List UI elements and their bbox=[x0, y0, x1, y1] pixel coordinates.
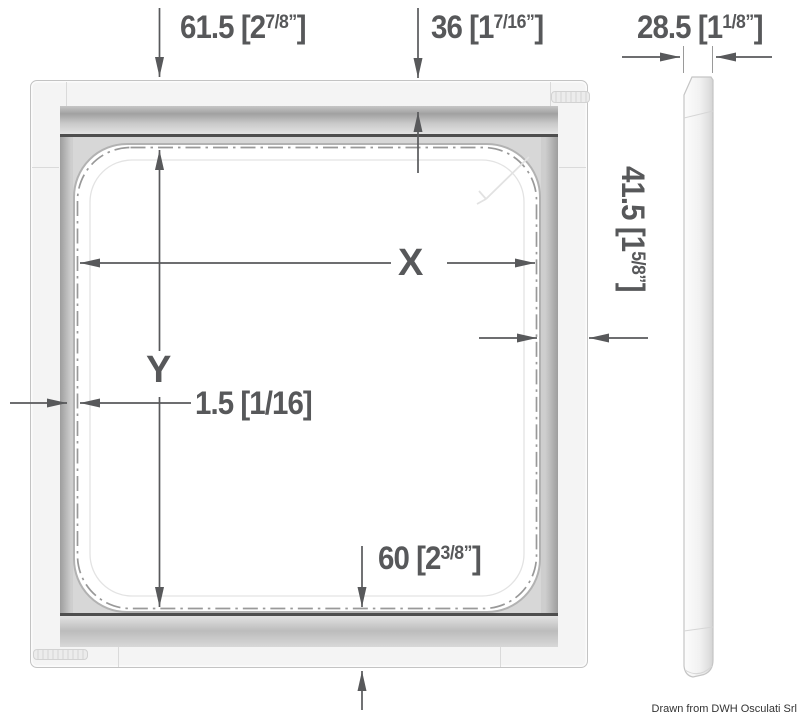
dim-suffix: ] bbox=[615, 283, 651, 292]
dim-fraction: 5/8” bbox=[627, 251, 648, 283]
dim-value: 28.5 [1 bbox=[637, 9, 722, 45]
side-profile-view bbox=[684, 77, 713, 677]
frame-seam bbox=[500, 646, 501, 667]
dim-fraction: 7/8” bbox=[265, 12, 297, 33]
dim-label-bottom: 60 [23/8”] bbox=[378, 542, 481, 574]
dim-label-top-left: 61.5 [27/8”] bbox=[180, 11, 306, 43]
dim-suffix: ] bbox=[754, 9, 763, 45]
top-cassette-bar bbox=[60, 106, 558, 137]
dim-suffix: ] bbox=[534, 9, 543, 45]
technical-drawing-canvas: 61.5 [27/8”] 36 [17/16”] 28.5 [11/8”] 41… bbox=[0, 0, 800, 720]
dim-label-edge-gap: 1.5 [1/16] bbox=[195, 387, 312, 419]
brand-badge-bottom-left bbox=[33, 649, 88, 660]
dim-label-top-right: 28.5 [11/8”] bbox=[637, 11, 763, 43]
dim-value: 1.5 [1/16] bbox=[195, 385, 312, 421]
dim-label-y: Y bbox=[146, 351, 171, 389]
dim-value: 41.5 [1 bbox=[615, 166, 651, 251]
dim-suffix: ] bbox=[472, 540, 481, 576]
dim-fraction: 3/8” bbox=[441, 543, 473, 564]
extension-lines bbox=[684, 46, 713, 73]
dim-label-top-middle: 36 [17/16”] bbox=[431, 11, 543, 43]
dim-fraction: 7/16” bbox=[494, 12, 535, 33]
side-profile-body bbox=[684, 77, 713, 677]
brand-badge-top-right bbox=[551, 91, 590, 103]
left-rail bbox=[60, 137, 73, 616]
dim-suffix: ] bbox=[297, 9, 306, 45]
dim-label-x: X bbox=[398, 244, 423, 282]
dim-fraction: 1/8” bbox=[722, 12, 754, 33]
blind-rail-frame bbox=[60, 106, 558, 647]
frame-seam bbox=[118, 646, 119, 667]
side-profile-seam bbox=[684, 111, 713, 118]
side-profile-seam bbox=[684, 627, 713, 631]
dim-label-right-side: 41.5 [15/8”] bbox=[617, 166, 649, 292]
bottom-rail-bar bbox=[60, 613, 558, 647]
drawing-credit: Drawn from DWH Osculati Srl bbox=[630, 703, 797, 716]
dim-value: 36 [1 bbox=[431, 9, 494, 45]
frame-seam bbox=[66, 82, 67, 107]
frame-seam bbox=[559, 167, 586, 168]
right-rail bbox=[541, 137, 558, 616]
dim-value: 60 [2 bbox=[378, 540, 441, 576]
side-profile-bottom-cap bbox=[685, 666, 712, 674]
dim-value: 61.5 [2 bbox=[180, 9, 265, 45]
frame-seam bbox=[32, 167, 59, 168]
